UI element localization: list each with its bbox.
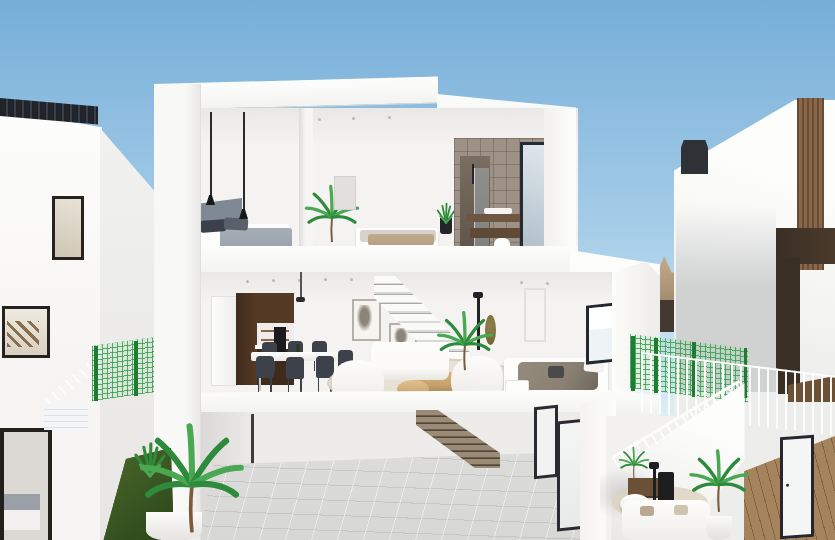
pendant-light-cord: [210, 112, 212, 196]
fence-post: [94, 346, 98, 401]
pendant-cord-dining: [300, 272, 302, 298]
nook-cushion: [548, 366, 564, 378]
wardrobe-door: [334, 176, 356, 210]
bed2-bench: [368, 234, 434, 245]
sofa-cushion: [640, 506, 654, 516]
floor-slab-upper: [154, 246, 578, 274]
chimney: [681, 140, 708, 174]
basin: [484, 208, 512, 214]
indoor-palm: [432, 296, 498, 382]
window-blind: [589, 306, 615, 331]
terrace-floor-lamp: [653, 466, 656, 500]
ceiling-spotlight: [352, 117, 355, 120]
botanical-print-large: [352, 299, 381, 341]
ceiling-spotlight: [318, 118, 321, 121]
bed-silhouette: [4, 494, 40, 510]
ceiling-spotlight: [388, 116, 391, 119]
alley-big-palm: [122, 414, 262, 536]
fence-post: [134, 341, 138, 396]
sheet-silhouette: [4, 510, 40, 530]
pendant-light-cord: [243, 112, 245, 210]
bathroom: [454, 138, 546, 256]
fence-post: [631, 336, 635, 391]
terrace-big-palm: [684, 424, 754, 534]
timber-stair-silhouette: [7, 321, 39, 347]
exterior-stair-steps: [44, 404, 88, 430]
fridge: [211, 296, 238, 386]
ceiling-spotlight: [324, 278, 327, 281]
door-handle: [786, 484, 789, 487]
stairwell-window: [2, 306, 50, 358]
terrace-small-palm: [616, 440, 652, 484]
ceiling-spotlight: [520, 281, 523, 284]
print-artwork: [357, 305, 372, 331]
tall-window: [52, 196, 84, 260]
architectural-render: [0, 0, 835, 540]
ceiling-spotlight: [546, 282, 549, 285]
ceiling-spotlight: [272, 279, 275, 282]
pendant-fixture-dining: [296, 297, 305, 302]
glazed-door: [780, 435, 814, 539]
walnut-tall-cabinet: [236, 293, 257, 385]
dining-chair: [286, 357, 304, 379]
bed1-pillow: [200, 219, 227, 233]
ceiling-spotlight: [350, 278, 353, 281]
upper-right-wall: [544, 108, 576, 254]
basement-door-small: [534, 405, 558, 480]
nook-door: [524, 288, 546, 342]
ceiling-spotlight: [246, 280, 249, 283]
lower-bedroom-window: [0, 428, 52, 540]
walnut-upper-cabinets: [257, 293, 294, 324]
dining-chair: [256, 356, 274, 378]
bed1-pillow: [224, 217, 249, 230]
